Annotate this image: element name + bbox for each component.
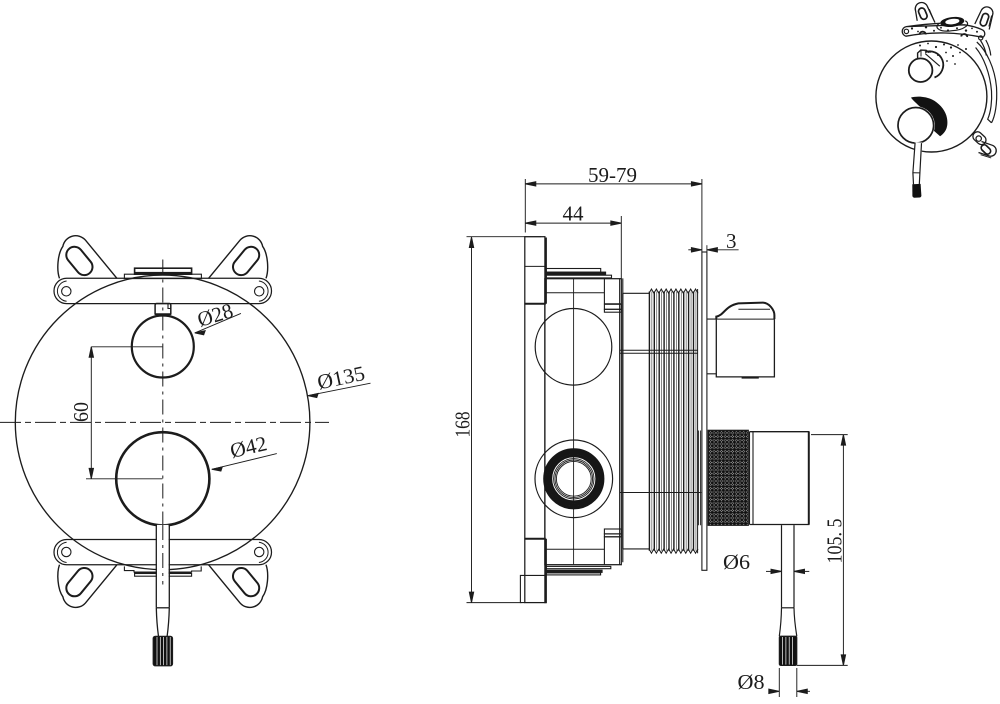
svg-text:60: 60 [69, 402, 93, 422]
svg-text:44: 44 [563, 202, 585, 226]
svg-text:59-79: 59-79 [588, 163, 637, 187]
svg-text:105. 5: 105. 5 [823, 519, 847, 564]
svg-text:168: 168 [451, 412, 475, 438]
svg-text:3: 3 [726, 229, 737, 253]
svg-text:Ø6: Ø6 [723, 550, 750, 574]
svg-text:Ø8: Ø8 [738, 670, 765, 694]
